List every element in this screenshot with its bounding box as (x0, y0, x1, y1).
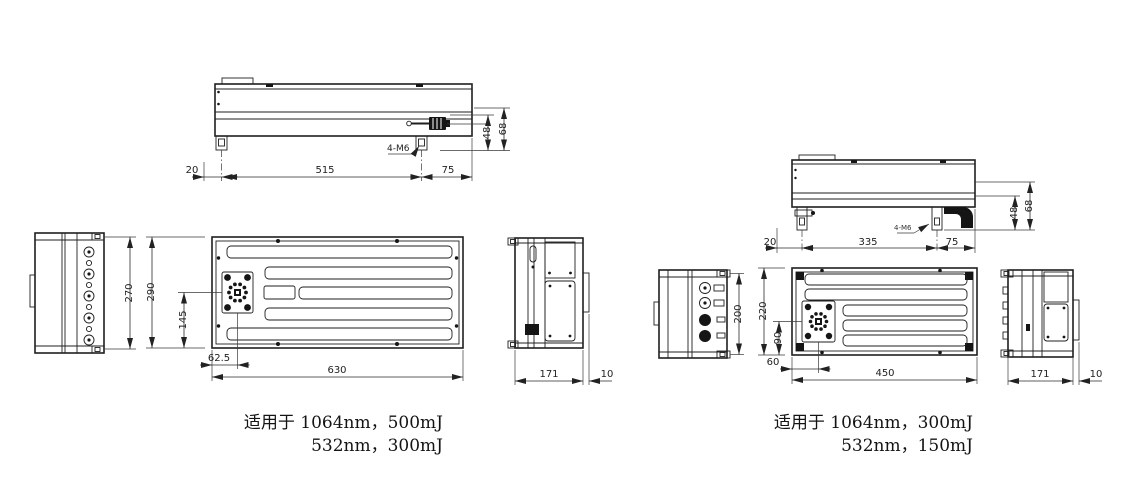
dim-label-lid-right: 10 (1085, 368, 1107, 381)
dim-label-depth-left: 171 (529, 368, 569, 381)
lid-tab (222, 78, 253, 84)
beam-port-flange (222, 272, 253, 313)
dim-label-h2-left: 68 (497, 117, 511, 141)
caption-line2: 532nm，150mJ (773, 435, 973, 458)
dim-label-front-height-right: 200 (732, 302, 746, 326)
mounting-tab (508, 238, 518, 245)
dim-label-tail-right: 75 (940, 236, 964, 249)
left-side-view (192, 78, 510, 181)
dim-label-depth-right: 171 (1020, 368, 1060, 381)
dim-label-tail-left: 75 (436, 164, 460, 177)
foot (216, 136, 227, 181)
cover-plate (583, 273, 589, 312)
dim-label-h2-right: 68 (1023, 194, 1037, 218)
dim-label-span-right: 335 (848, 236, 888, 249)
dim-label-h1-right: 48 (1008, 201, 1022, 225)
connector-column (84, 247, 94, 345)
dim-label-plan-height-right: 220 (757, 299, 771, 323)
caption-line1: 适用于 1064nm，500mJ (243, 412, 443, 435)
thread-callout-left: 4-M6 (387, 144, 409, 154)
mounting-tab (717, 270, 730, 277)
dim-label-port-x-left: 62.5 (202, 352, 236, 365)
left-plan-view (146, 237, 463, 381)
mounting-tab (92, 233, 104, 240)
cover-plate (1073, 300, 1079, 340)
dim-label-span-left: 515 (305, 164, 345, 177)
dim-label-port-x-right: 60 (757, 356, 789, 369)
dim-label-port-y-left: 145 (177, 308, 191, 332)
dim-label-front-height-left: 270 (123, 281, 137, 305)
foot (797, 207, 807, 252)
caption-left-unit: 适用于 1064nm，500mJ 532nm，300mJ (243, 412, 443, 458)
mounting-tab (508, 341, 518, 348)
elbow-connector (944, 207, 973, 228)
dim-label-h1-left: 48 (481, 121, 495, 145)
drawing-canvas: 20 515 75 48 68 4-M6 270 290 145 62.5 63… (0, 0, 1131, 494)
left-end-view (508, 238, 612, 385)
vent-slots (227, 246, 452, 340)
connector-column (699, 283, 725, 343)
left-front-view (30, 233, 136, 353)
caption-right-unit: 适用于 1064nm，300mJ 532nm，150mJ (773, 412, 973, 458)
dim-label-width-left: 630 (317, 364, 357, 377)
dim-label-plan-height-left: 290 (145, 280, 159, 304)
thread-callout-right: 4-M6 (894, 224, 911, 232)
foot (416, 136, 427, 181)
dim-label-offset-right: 20 (758, 236, 782, 249)
right-side-view (765, 155, 1035, 253)
right-front-view (654, 270, 744, 358)
beam-port-flange (802, 301, 835, 342)
caption-line1: 适用于 1064nm，300mJ (773, 412, 973, 435)
dim-label-lid-left: 10 (596, 368, 618, 381)
dim-label-width-right: 450 (865, 367, 905, 380)
dim-label-port-y-right: 90 (772, 326, 786, 350)
dim-label-offset-left: 20 (180, 164, 204, 177)
caption-line2: 532nm，300mJ (243, 435, 443, 458)
mounting-tab (92, 346, 104, 353)
